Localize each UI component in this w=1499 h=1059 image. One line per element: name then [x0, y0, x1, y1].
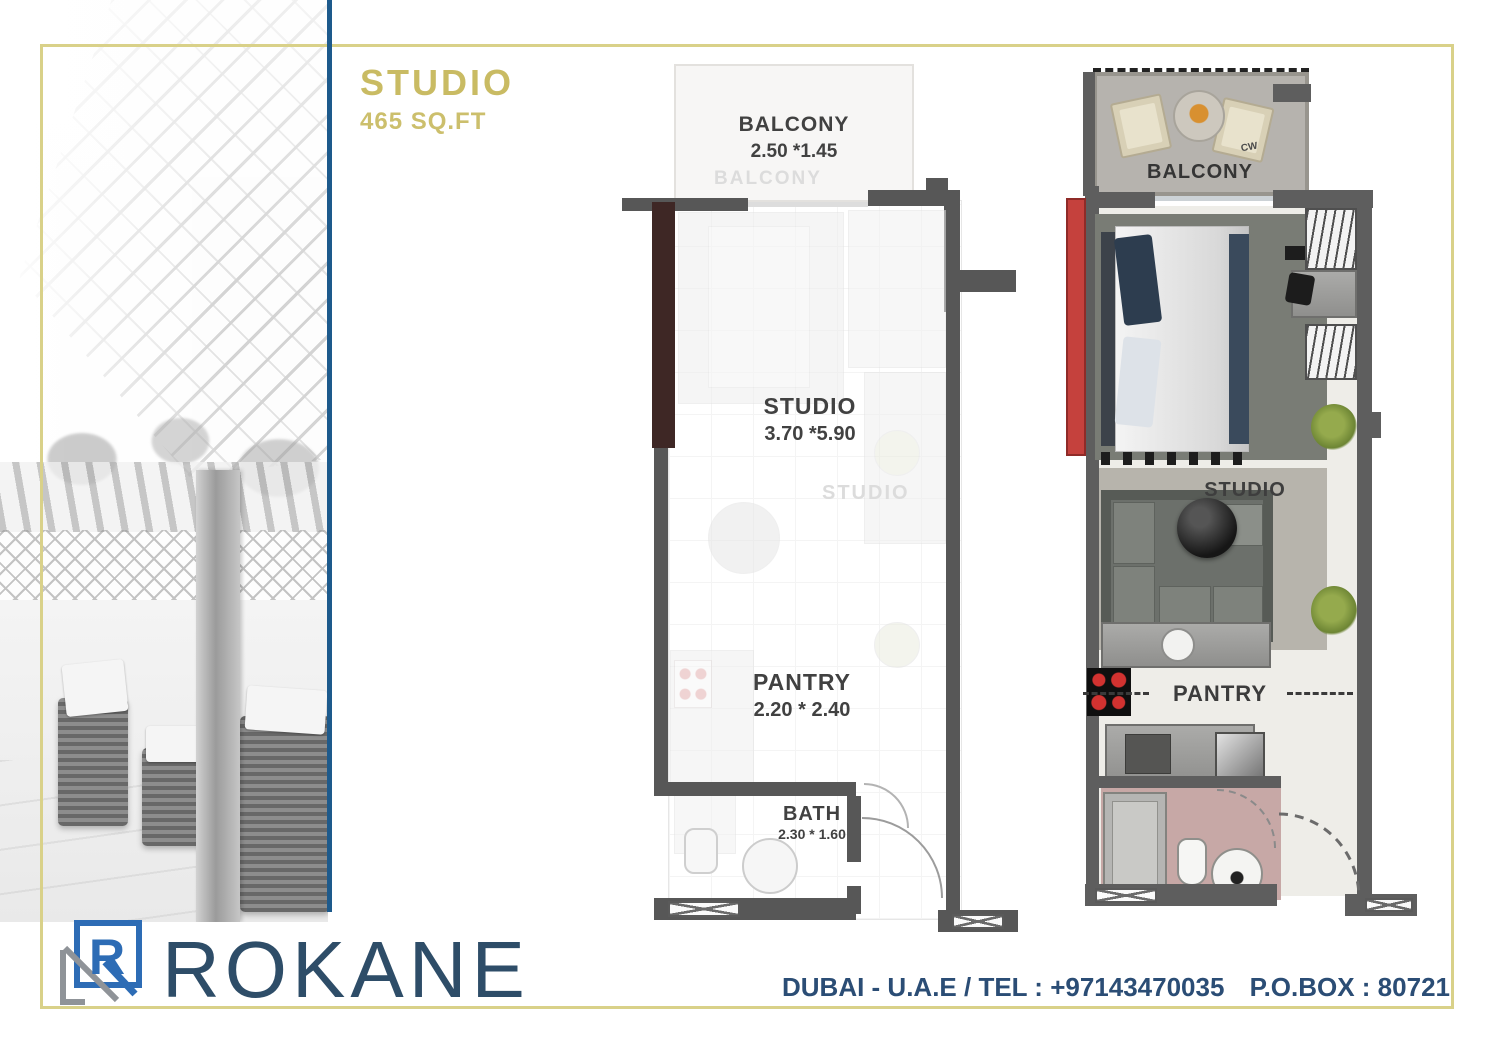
plan-title: STUDIO [360, 62, 514, 104]
bw-floorplan: BALCONY 2.50 *1.45 BALCONY [622, 60, 1024, 928]
wicker-sofa [240, 716, 328, 912]
bw-studio-dims: 3.70 *5.90 [710, 422, 910, 447]
bw-balcony-label: BALCONY [684, 112, 904, 138]
wall-segment [960, 270, 1016, 292]
wall-segment [654, 448, 668, 788]
sofa-cushion [245, 685, 328, 734]
title-block: STUDIO 465 SQ.FT [360, 62, 514, 136]
color-pantry-label: PANTRY [1155, 680, 1285, 708]
entry-door-arc [1277, 812, 1361, 898]
wall-segment [1273, 84, 1311, 102]
window-marker [1365, 898, 1413, 912]
wall-segment [1083, 72, 1095, 196]
bed-headboard [1101, 232, 1115, 446]
plant-ghost [874, 622, 920, 668]
toilet [1177, 838, 1207, 886]
footer-info: DUBAI - U.A.E / TEL : +97143470035 P.O.B… [782, 972, 1450, 1003]
armchair-cushion [61, 659, 128, 717]
balcony-table [1173, 90, 1225, 142]
brochure-page: STUDIO 465 SQ.FT BALCONY 2.50 *1.45 BALC… [0, 0, 1499, 1059]
color-studio-label: STUDIO [1180, 478, 1310, 503]
bw-bath-label: BATH [712, 802, 912, 827]
bw-balcony-dims: 2.50 *1.45 [684, 140, 904, 164]
wardrobe-ghost [848, 210, 946, 368]
bw-pantry-dims: 2.20 * 2.40 [692, 698, 912, 723]
wall-segment [1357, 190, 1372, 894]
bath-door-arc [1215, 788, 1277, 850]
rendered-floorplan: BALCONY CW [1065, 62, 1427, 928]
partition-dotted-track [1101, 452, 1253, 465]
brand-wordmark: ROKANE [162, 924, 530, 1016]
color-balcony-label: BALCONY [1125, 160, 1275, 185]
pantry-dash-right [1287, 692, 1353, 695]
footer-pobox: P.O.BOX : 80721 [1250, 972, 1450, 1003]
logo-letter: R [89, 929, 125, 985]
kitchen-hob [1161, 628, 1195, 662]
wall-segment [654, 782, 856, 796]
wall-segment [1099, 776, 1281, 788]
plant [1311, 404, 1357, 450]
bw-pantry-label: PANTRY [692, 668, 912, 697]
kitchen-sink [1125, 734, 1171, 774]
basin-outline [742, 838, 798, 894]
wardrobe [1305, 324, 1357, 380]
wicker-armchair [58, 698, 128, 826]
pergola-beams [0, 462, 328, 532]
pantry-dash-left [1083, 692, 1149, 695]
coffee-table [1177, 498, 1237, 558]
vertical-divider-line [327, 0, 332, 912]
bw-balcony-ghost-label: BALCONY [714, 168, 822, 190]
window-marker [668, 901, 740, 917]
table-ghost [708, 502, 780, 574]
bw-studio-ghost-label: STUDIO [822, 482, 910, 505]
red-accent-wall [1066, 198, 1086, 456]
shower [1103, 792, 1167, 894]
sofa-cushion [1113, 566, 1155, 628]
building-photo [0, 0, 328, 922]
rokane-logo-icon: R [55, 918, 151, 1006]
pergola-lattice [0, 530, 328, 604]
plan-area: 465 SQ.FT [360, 108, 514, 136]
balcony-chair [1110, 93, 1173, 159]
balcony-door-glass [1155, 196, 1273, 201]
footer-contact: DUBAI - U.A.E / TEL : +97143470035 [782, 972, 1224, 1003]
wall-segment [1372, 412, 1381, 438]
desk-chair [1285, 272, 1316, 306]
window-marker [952, 914, 1004, 929]
bed-duvet-ghost [708, 226, 810, 388]
plant [1311, 586, 1357, 636]
bed [1101, 226, 1249, 452]
window-marker [1095, 888, 1157, 903]
bw-studio-label: STUDIO [710, 392, 910, 421]
sofa-cushion [1113, 502, 1155, 564]
wardrobe [1305, 208, 1357, 270]
pergola-post [196, 470, 240, 922]
bed-throw [1229, 234, 1249, 444]
bw-bath-dims: 2.30 * 1.60 [712, 826, 912, 844]
